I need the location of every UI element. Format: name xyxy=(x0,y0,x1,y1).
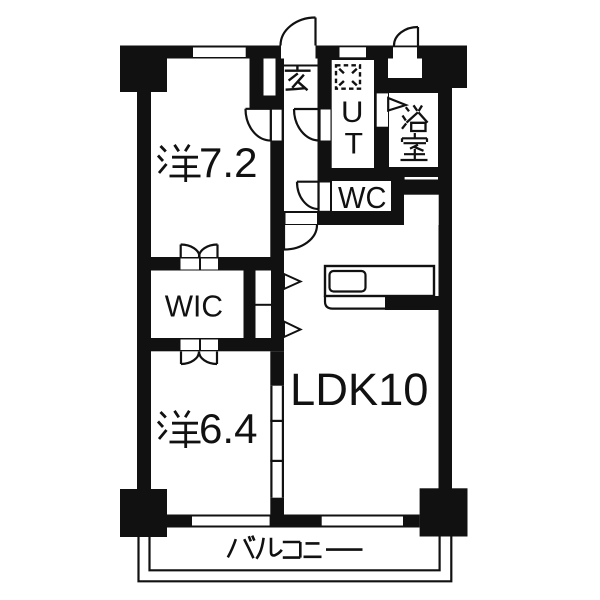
svg-text:7.2: 7.2 xyxy=(199,139,258,186)
svg-text:WIC: WIC xyxy=(165,289,223,324)
svg-text:T: T xyxy=(345,128,364,161)
svg-text:LDK10: LDK10 xyxy=(290,364,429,415)
svg-text:6.4: 6.4 xyxy=(199,405,258,452)
svg-text:WC: WC xyxy=(338,180,387,215)
svg-text:U: U xyxy=(341,96,364,129)
